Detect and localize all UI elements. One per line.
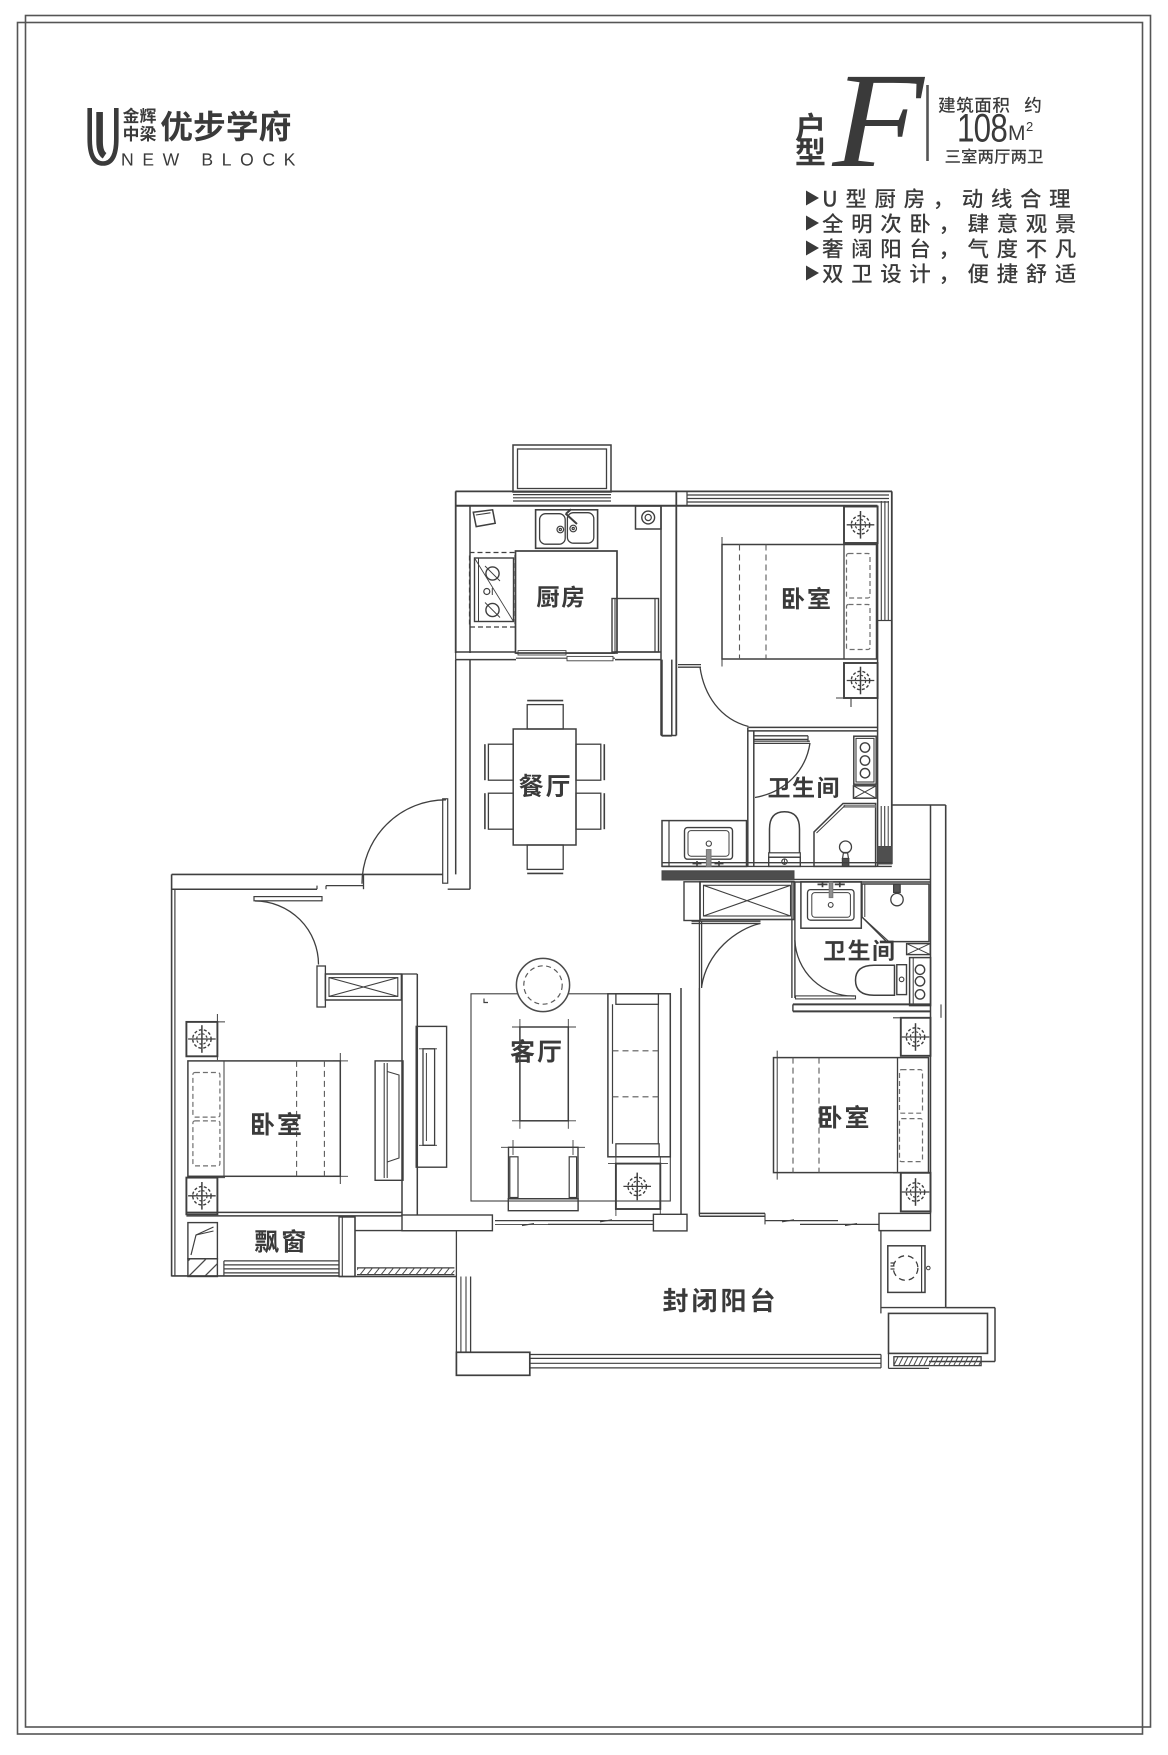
svg-text:M: M — [1008, 122, 1026, 145]
svg-text:108: 108 — [957, 107, 1007, 151]
svg-text:2: 2 — [1026, 119, 1033, 134]
